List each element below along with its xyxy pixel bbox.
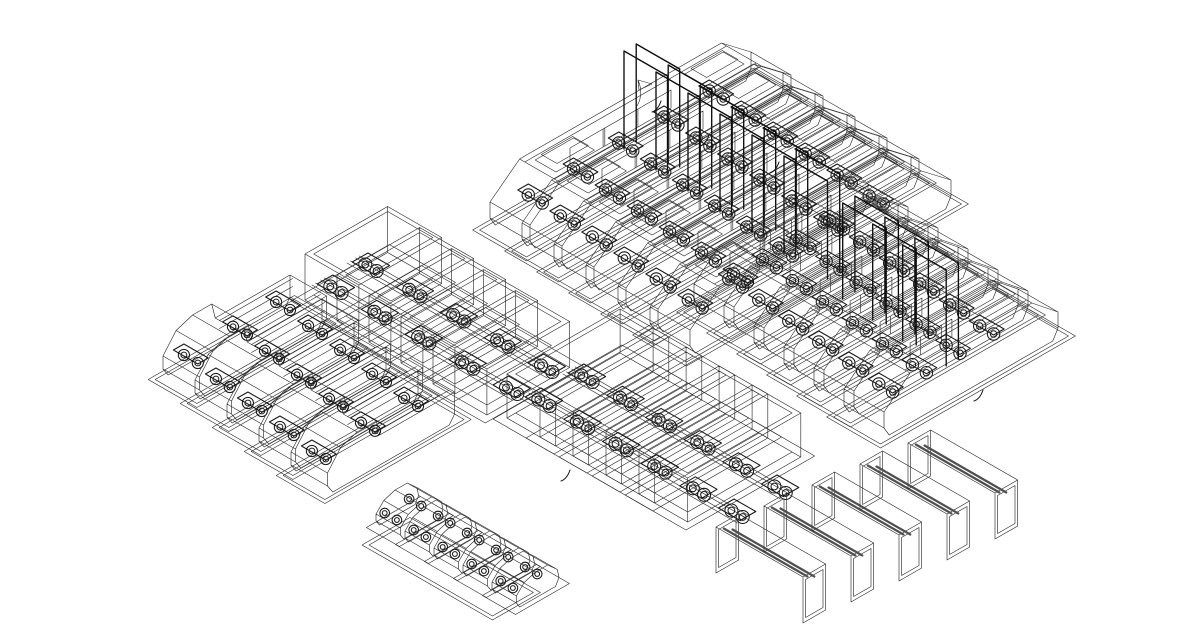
portal-frame-rail — [868, 466, 959, 514]
wireframe-scene-canvas — [0, 0, 1200, 630]
tram-wheel-bogies — [868, 315, 1004, 398]
bench-row — [716, 430, 1018, 623]
car-row — [362, 483, 569, 620]
car-base-strip — [362, 518, 540, 621]
portal-frame-rail — [820, 487, 911, 535]
tram-wheel-bogies — [518, 80, 734, 209]
isometric-cad-wireframe-drawing — [0, 0, 1200, 630]
open-crate-wireframe — [559, 347, 749, 492]
open-crate-wireframe — [625, 385, 815, 530]
tram-wheel-bogies — [550, 101, 766, 230]
van-wheels — [301, 387, 428, 465]
portal-frame-rail — [772, 508, 863, 556]
portal-frame-rail — [916, 445, 1007, 493]
portal-frame-rail — [724, 529, 815, 577]
small-car-wireframe — [482, 551, 569, 615]
